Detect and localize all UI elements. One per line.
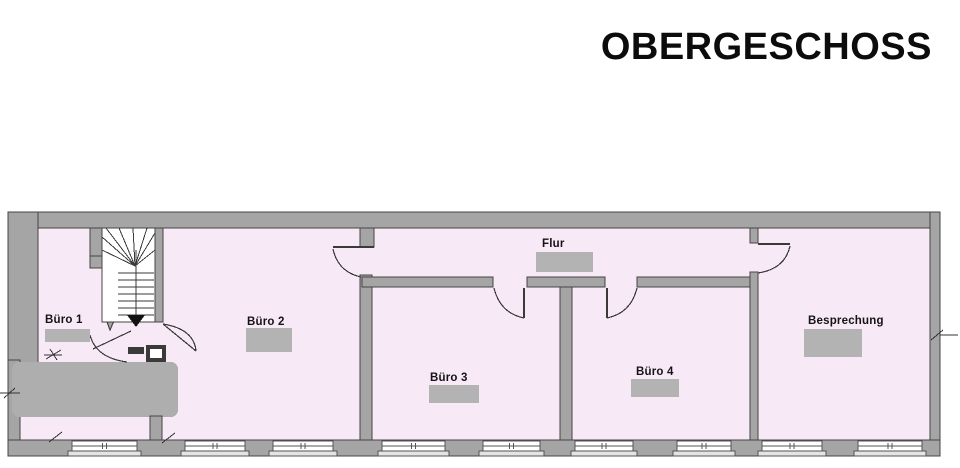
window-6 [571,441,637,456]
room-label-buero1: Büro 1 [45,314,83,326]
floor-plan-page: OBERGESCHOSS Büro 1Büro 2Büro 3Büro 4Flu… [0,0,960,468]
window-7 [673,441,735,456]
window-1 [68,441,141,456]
room-label-besprechung: Besprechung [808,315,884,327]
area-value-box-buero4 [631,379,679,397]
area-value-box-buero1 [45,329,90,342]
area-value-box-buero3 [429,385,479,403]
window-5 [479,441,544,456]
window-4 [378,441,449,456]
window-2 [181,441,249,456]
room-label-buero3: Büro 3 [430,372,468,384]
area-value-box-buero2 [246,328,292,352]
staircase [102,228,155,327]
room-label-buero2: Büro 2 [247,316,285,328]
floor-plan-drawing [0,0,960,468]
area-value-box-besprechung [804,329,862,357]
room-label-flur: Flur [542,238,565,250]
area-value-box-flur [536,252,593,272]
drawing-title: OBERGESCHOSS [601,26,932,69]
window-8 [758,441,826,456]
windows [68,441,926,456]
room-label-buero4: Büro 4 [636,366,674,378]
redacted-area [12,362,178,417]
window-3 [269,441,337,456]
window-9 [854,441,926,456]
